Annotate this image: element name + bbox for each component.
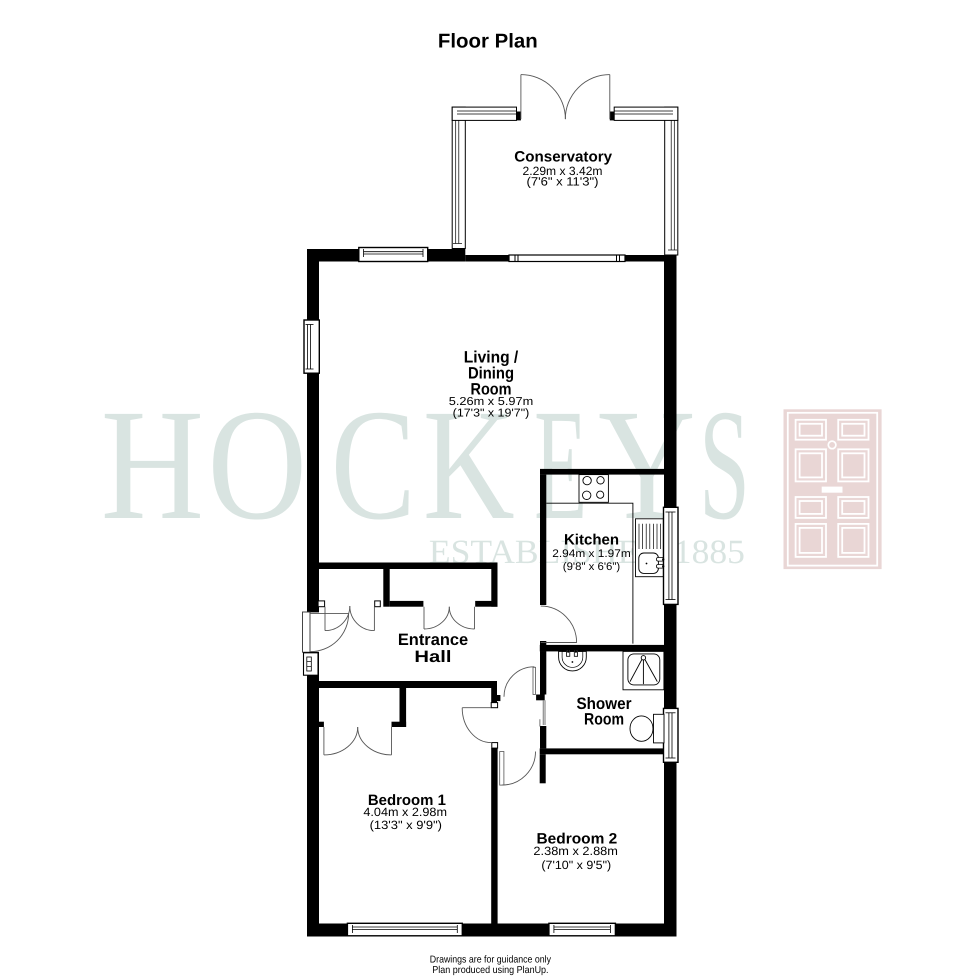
svg-text:Plan produced using PlanUp.: Plan produced using PlanUp. [432,965,548,976]
svg-text:(9'8" x 6'6"): (9'8" x 6'6") [563,561,620,573]
svg-text:4.04m x 2.98m: 4.04m x 2.98m [363,805,447,819]
svg-text:(7'6" x 11'3"): (7'6" x 11'3") [527,175,599,189]
svg-text:S: S [699,377,750,553]
svg-text:O: O [208,377,308,553]
svg-text:Entrance: Entrance [398,631,468,649]
svg-text:Room: Room [584,711,624,729]
svg-text:5.26m x 5.97m: 5.26m x 5.97m [449,396,534,408]
svg-text:2.94m x 1.97m: 2.94m x 1.97m [552,548,630,560]
svg-text:H: H [101,377,204,553]
svg-text:(13'3" x 9'9"): (13'3" x 9'9") [370,818,442,832]
svg-text:C: C [331,377,416,553]
svg-text:2.38m x 2.88m: 2.38m x 2.88m [533,844,618,858]
svg-text:(7'10" x 9'5"): (7'10" x 9'5") [541,858,611,872]
svg-text:(17'3" x 19'7"): (17'3" x 19'7") [453,408,530,420]
svg-text:Kitchen: Kitchen [564,532,619,549]
svg-text:Hall: Hall [414,648,451,666]
svg-text:Conservatory: Conservatory [514,148,612,165]
svg-text:Floor Plan: Floor Plan [438,31,538,53]
